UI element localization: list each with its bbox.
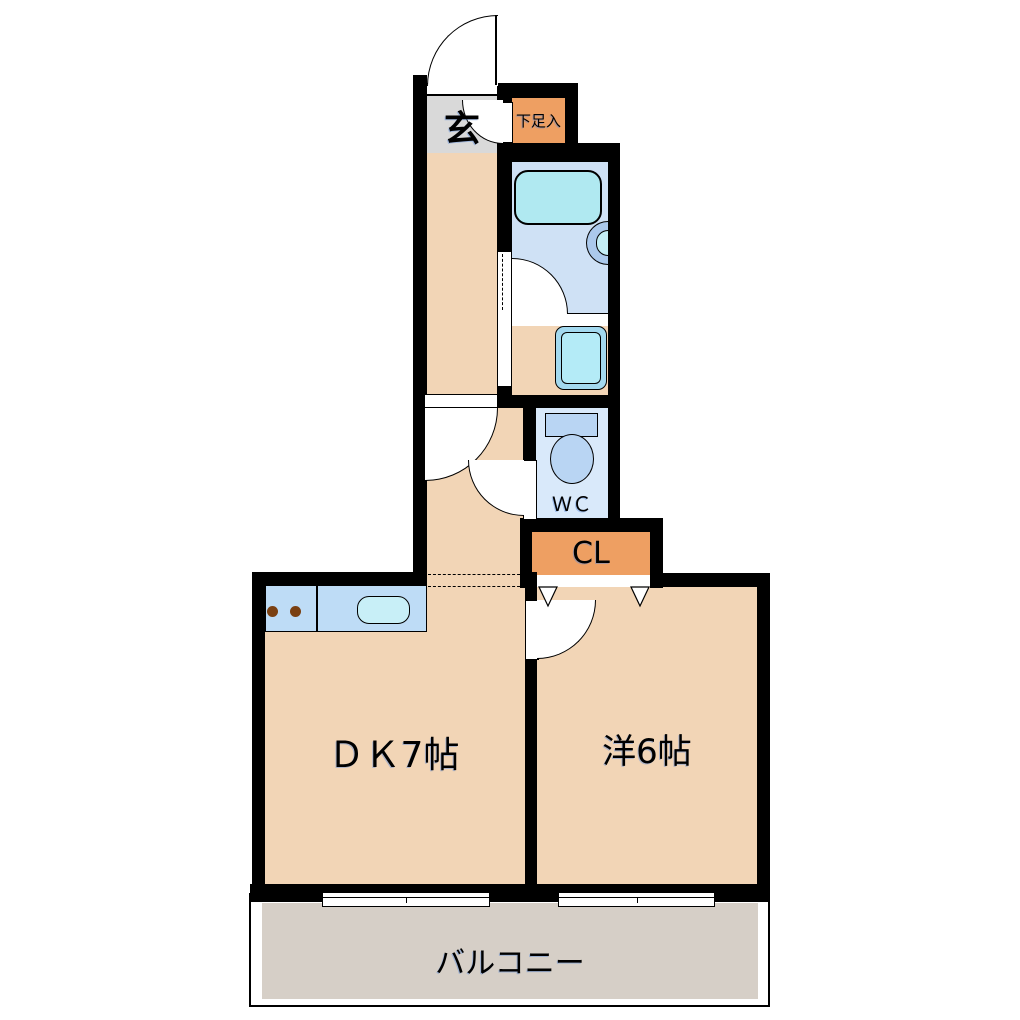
toilet-bowl <box>550 434 594 484</box>
wall <box>525 572 537 602</box>
window-tick <box>406 897 407 903</box>
wall <box>252 572 425 585</box>
wall <box>497 143 620 162</box>
hall-door-opening <box>425 394 497 408</box>
wall <box>497 141 512 252</box>
gas-burner-icon <box>267 606 278 617</box>
wall <box>663 573 768 587</box>
wall <box>525 658 537 884</box>
sliding-window <box>558 892 715 907</box>
washing-machine-tub <box>561 332 601 384</box>
window-tick <box>637 897 638 903</box>
label-wc: ＷＣ <box>536 488 608 517</box>
wall <box>413 75 427 585</box>
entrance-door-leaf <box>495 15 497 85</box>
folding-door-marker-icon <box>630 586 650 608</box>
kitchen-sink <box>357 596 410 624</box>
label-western-room: 洋6帖 <box>537 724 757 773</box>
wall <box>757 573 770 893</box>
label-genkan: 玄 <box>427 100 497 152</box>
bathtub <box>514 170 602 225</box>
wc-door-leaf <box>523 460 537 520</box>
wall <box>608 150 620 530</box>
floor-plan: 玄 下足入 ＷＣ CL ＤＫ7帖 洋6帖 バルコニー <box>0 0 1020 1020</box>
dk-boundary-dashed-line <box>428 574 525 575</box>
wall <box>523 408 536 462</box>
gas-burner-icon <box>290 606 301 617</box>
label-closet: CL <box>532 536 650 571</box>
bath-door-dashed-leaf <box>502 254 503 310</box>
wall <box>520 518 663 532</box>
label-shoe-storage: 下足入 <box>511 110 566 131</box>
wall <box>510 395 620 408</box>
dk-boundary-dashed-line <box>428 586 525 587</box>
sliding-window <box>322 892 490 907</box>
entrance-door-arc <box>427 15 498 86</box>
wall <box>650 518 663 588</box>
bath-door-opening <box>497 252 512 386</box>
label-balcony: バルコニー <box>262 938 758 982</box>
label-dining-kitchen: ＤＫ7帖 <box>263 726 525 778</box>
bath-washer-divider <box>512 313 608 326</box>
kitchen-counter-divider <box>316 586 318 631</box>
folding-door-marker-icon <box>538 586 558 608</box>
